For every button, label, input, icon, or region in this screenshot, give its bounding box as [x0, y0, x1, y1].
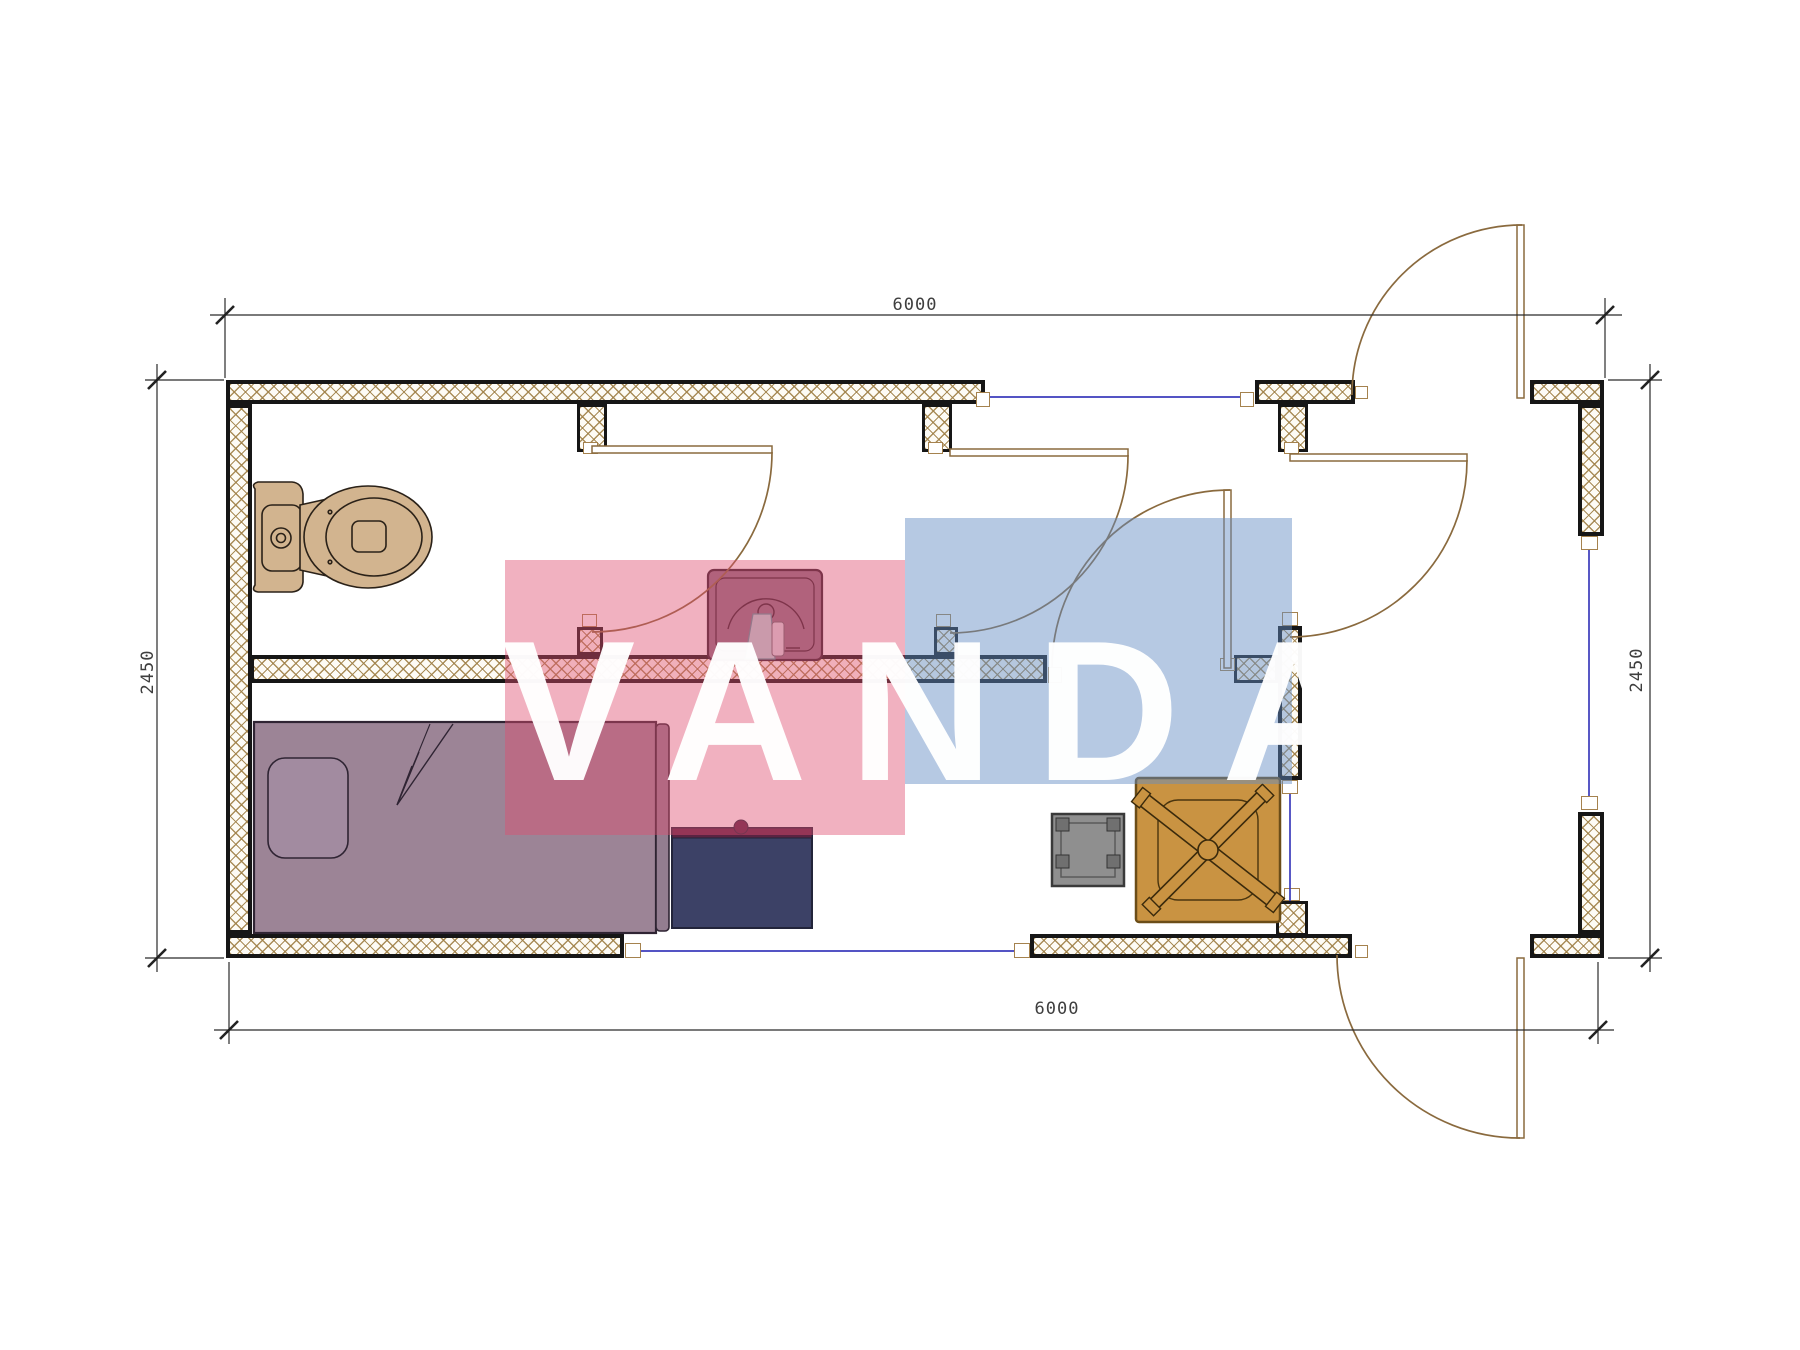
door-arc-entry-bottom — [1337, 955, 1520, 1138]
dimension-label-right: 2450 — [1627, 628, 1647, 712]
watermark-text: VANDA — [502, 612, 1408, 812]
door-leaf-bathroom — [592, 446, 772, 453]
door-leaf-rightroom — [1290, 454, 1467, 461]
door-leaf-entry-top — [1517, 225, 1524, 398]
floor-plan-canvas: 6000 6000 2450 2450 VANDA — [0, 0, 1800, 1350]
toilet — [254, 482, 432, 592]
dimension-label-bottom: 6000 — [1015, 999, 1099, 1019]
dimension-label-top: 6000 — [873, 295, 957, 315]
stool — [1052, 814, 1124, 886]
bed-pillow — [268, 758, 348, 858]
nightstand-cabinet — [672, 820, 812, 928]
door-arc-entry-top — [1352, 225, 1522, 395]
door-leaf-entry-bottom — [1517, 958, 1524, 1138]
dimension-label-left: 2450 — [138, 630, 158, 714]
door-leaf-middle — [950, 449, 1128, 456]
